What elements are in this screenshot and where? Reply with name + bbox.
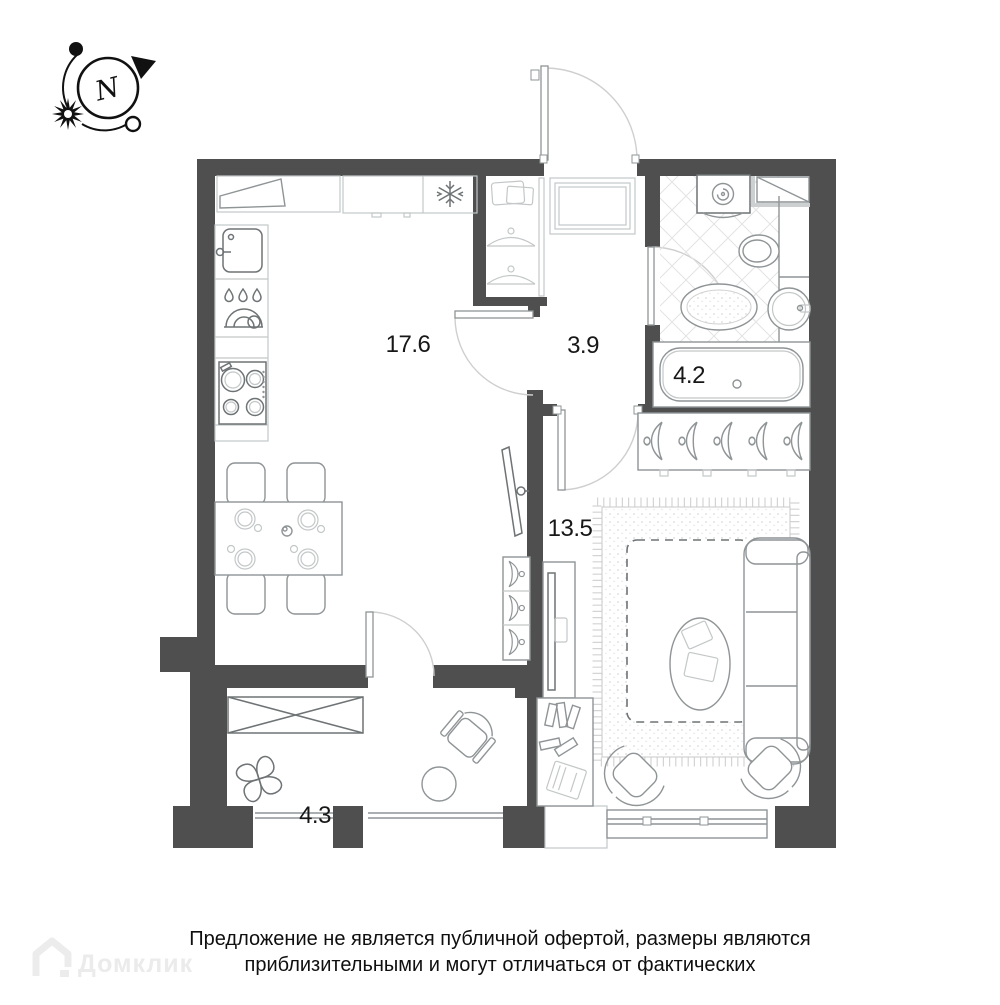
disclaimer-line-1: Предложение не является публичной оферто…	[189, 928, 810, 950]
label-balcony: 4.3	[299, 802, 331, 829]
balcony-table	[422, 767, 456, 801]
watermark: Домклик	[36, 941, 193, 978]
dining-set	[215, 463, 342, 614]
entrance-door	[531, 66, 639, 163]
kitchen-hall-door	[455, 311, 533, 395]
tv-console	[543, 562, 575, 698]
living-room-window	[545, 806, 767, 848]
toilet	[739, 235, 779, 267]
hall-bedroom-door	[553, 406, 642, 490]
compass-north-label: N	[91, 71, 124, 107]
plant	[236, 756, 281, 801]
compass: N	[52, 42, 156, 131]
washing-machine	[697, 175, 750, 218]
kitchen-window	[217, 176, 340, 212]
label-hall: 3.9	[567, 332, 599, 359]
kitchen-hanger-rack	[503, 557, 530, 660]
compass-sun-icon	[52, 98, 84, 130]
fridge-snowflake-icon	[437, 181, 463, 207]
tv-kitchen-side	[502, 447, 529, 536]
bedroom	[537, 413, 812, 817]
balcony-door	[366, 612, 434, 677]
coffee-oval	[670, 618, 730, 710]
balcony-armchair	[439, 702, 502, 765]
bathroom-sink	[768, 288, 810, 330]
bookshelf	[537, 698, 593, 806]
label-bathroom: 4.2	[673, 362, 705, 389]
watermark-text: Домклик	[78, 950, 193, 978]
hall	[487, 178, 635, 296]
bath-rug	[681, 284, 757, 330]
balcony	[228, 697, 503, 802]
floor-plan-svg: 17.6 3.9 4.2 13.5 4.3 N Домклик Предложе…	[0, 0, 1000, 1000]
storage-box	[228, 697, 363, 733]
disclaimer-line-2: приблизительными и могут отличаться от ф…	[245, 954, 756, 976]
label-bedroom: 13.5	[548, 515, 593, 542]
entrance-mat	[550, 178, 635, 234]
bathroom-shelf	[751, 176, 810, 207]
label-kitchen-living: 17.6	[386, 331, 431, 358]
kitchen-upper-cabinets	[343, 176, 477, 217]
wardrobe	[638, 413, 810, 476]
floor-plan-page: 17.6 3.9 4.2 13.5 4.3 N Домклик Предложе…	[0, 0, 1000, 1000]
hall-closet	[487, 178, 544, 296]
sofa	[744, 538, 810, 764]
balcony-glazing	[255, 813, 503, 818]
footer: Домклик Предложение не является публично…	[36, 928, 811, 978]
